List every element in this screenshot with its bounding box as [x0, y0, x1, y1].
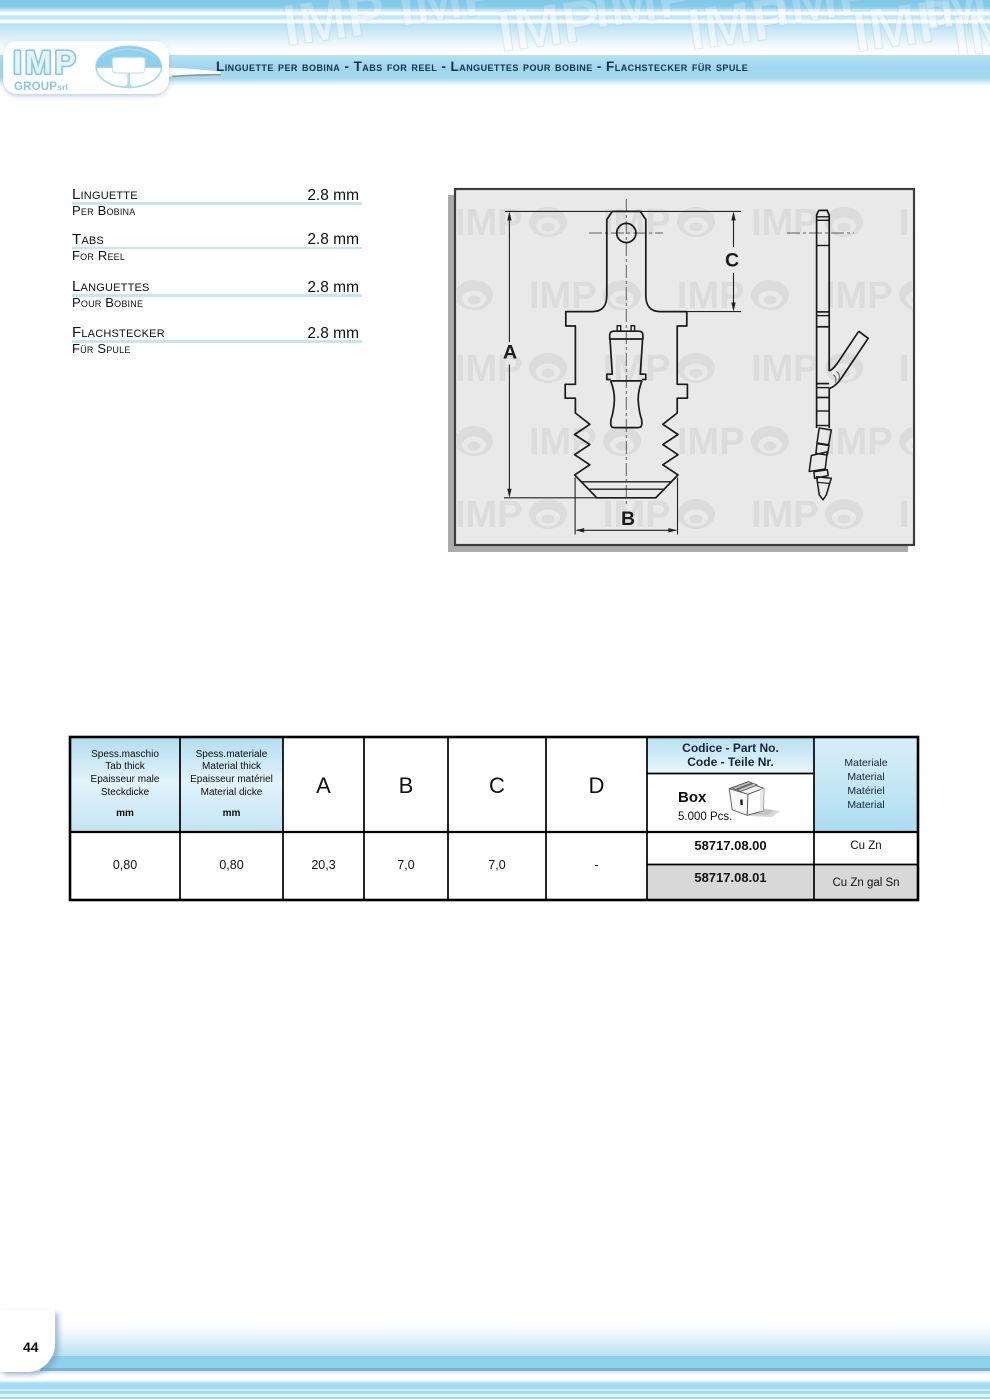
- svg-text:IMP: IMP: [13, 45, 79, 81]
- svg-text:GROUPsrl: GROUPsrl: [14, 81, 68, 93]
- svg-text:A: A: [503, 342, 517, 364]
- svg-text:B: B: [621, 508, 635, 530]
- svg-text:C: C: [725, 250, 739, 272]
